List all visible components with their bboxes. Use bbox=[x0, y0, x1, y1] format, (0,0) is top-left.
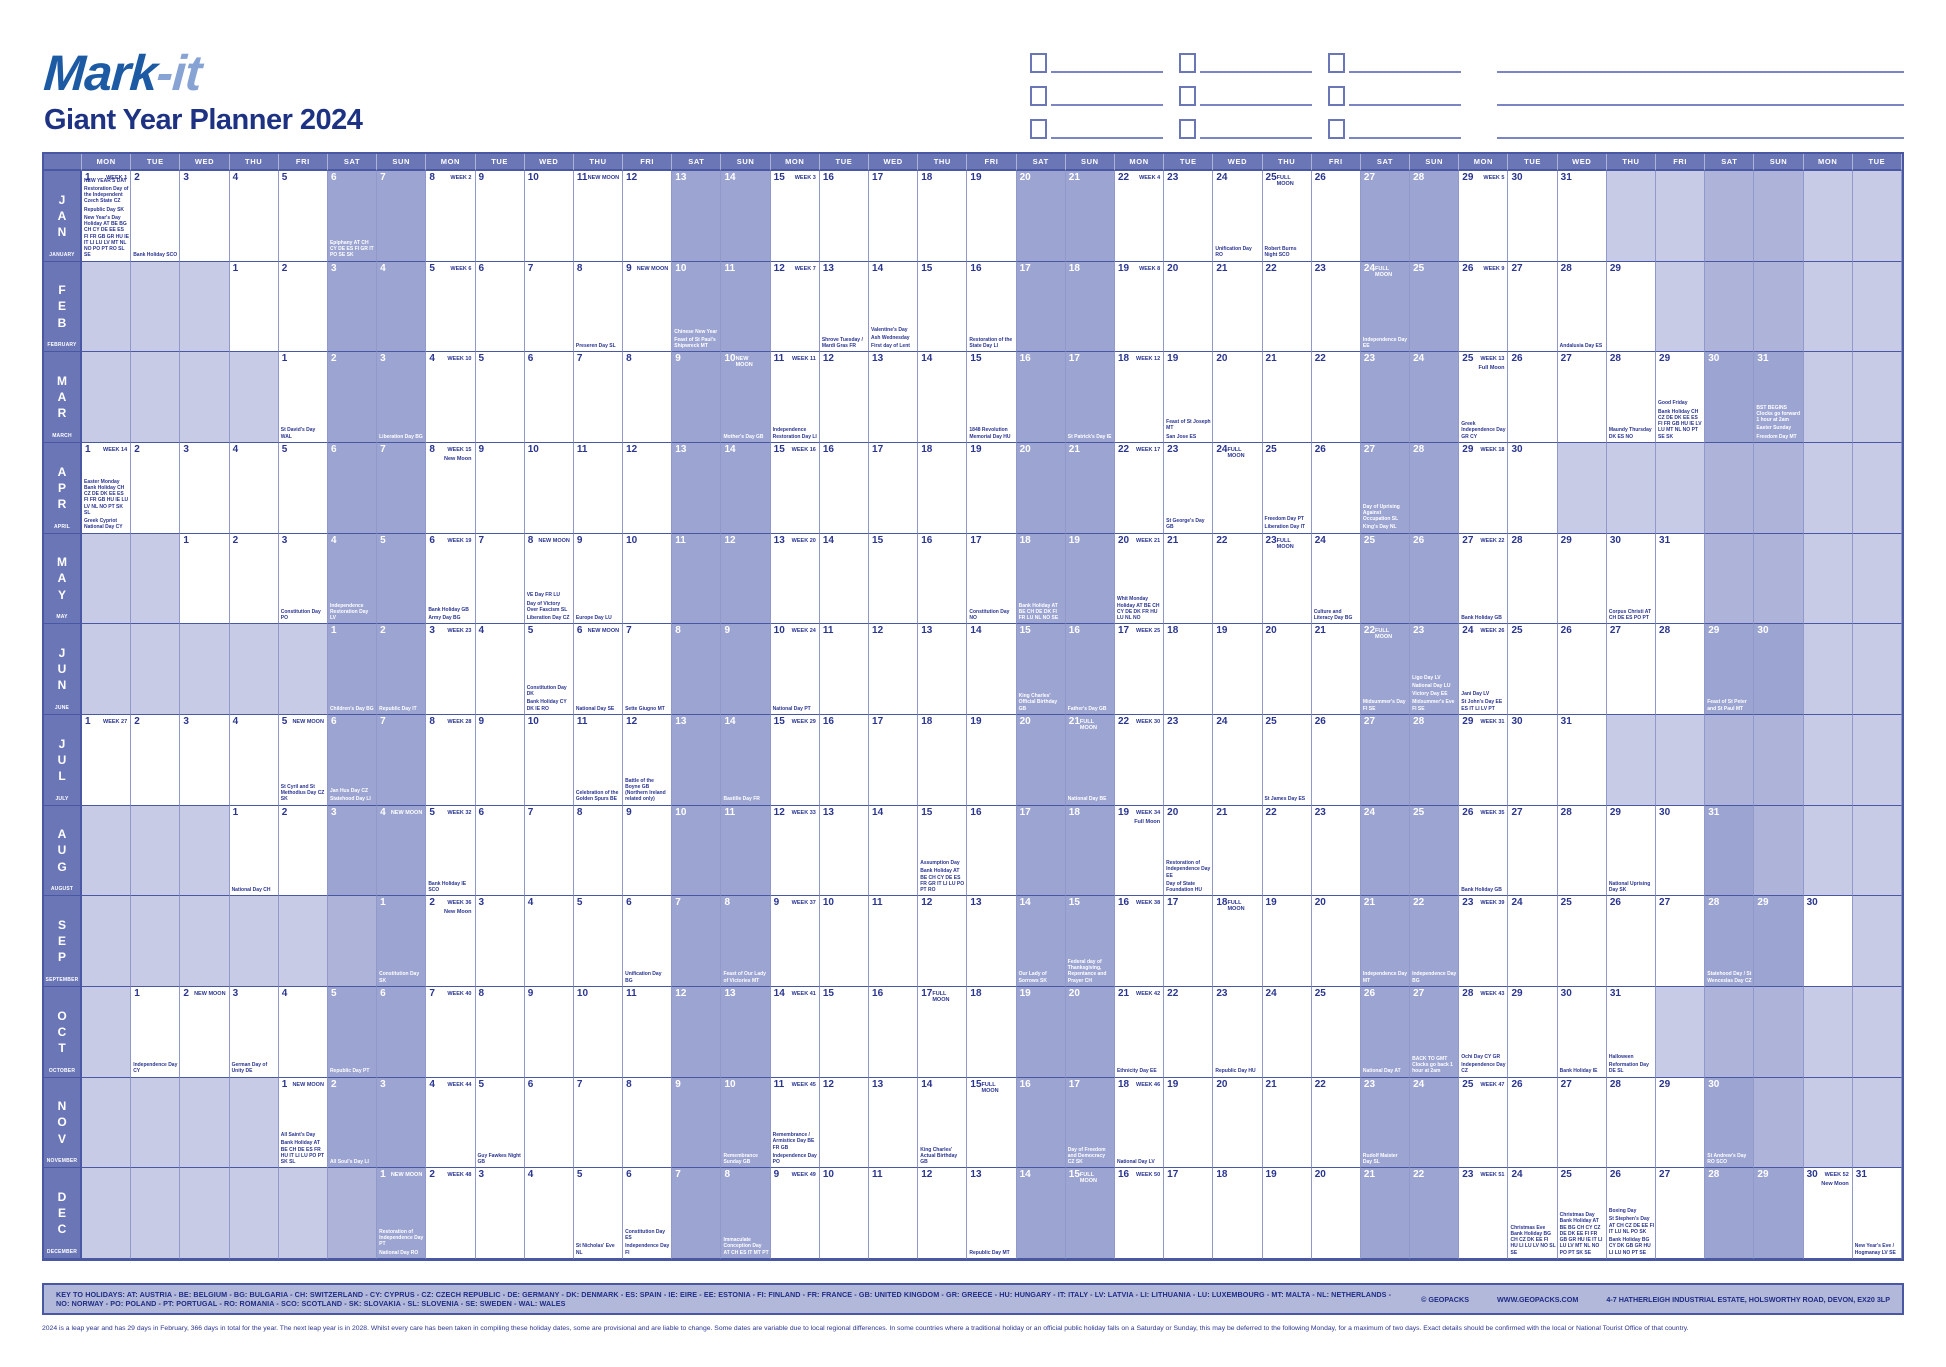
blank-cell bbox=[1853, 352, 1902, 443]
day-number: 15 bbox=[872, 536, 883, 546]
day-number: 7 bbox=[626, 626, 632, 636]
day-cell-top: 28 bbox=[1558, 806, 1606, 818]
holiday-entry: Europe Day LU bbox=[576, 615, 621, 621]
day-cell-mar-16: 16 bbox=[1017, 352, 1066, 443]
day-cell-top: 10 bbox=[574, 987, 622, 999]
blank-cell bbox=[180, 806, 229, 897]
day-number: 9 bbox=[577, 536, 583, 546]
day-cell-top: 20 bbox=[1017, 171, 1065, 183]
holiday-entry: Bank Holiday CH CZ DE DK EE ES FI FR GB … bbox=[1658, 409, 1703, 440]
day-cell-nov-12: 12 bbox=[820, 1078, 869, 1169]
week-label: WEEK 37 bbox=[792, 900, 816, 906]
day-cell-top: 17 bbox=[1017, 806, 1065, 818]
day-number: 20 bbox=[1167, 808, 1178, 818]
day-number: 31 bbox=[1561, 717, 1572, 727]
day-number: 1 bbox=[380, 898, 386, 908]
holiday-entry: Christmas Day Bank Holiday AT BE BG CH C… bbox=[1560, 1212, 1605, 1256]
day-cell-top: 5 bbox=[476, 1078, 524, 1090]
day-cell-feb-6: 6 bbox=[476, 262, 525, 353]
holiday-list: Bank Holiday GB bbox=[1461, 885, 1506, 893]
day-number: 24 bbox=[1511, 1170, 1522, 1180]
note-row bbox=[1030, 106, 1904, 139]
week-label: WEEK 22 bbox=[1480, 538, 1504, 544]
holiday-entry: Unification Day RO bbox=[1215, 246, 1260, 259]
day-number: 9 bbox=[724, 626, 730, 636]
day-cell-mar-13: 13 bbox=[869, 352, 918, 443]
day-cell-nov-11: 11WEEK 45Remembrance / Armistice Day BE … bbox=[771, 1078, 820, 1169]
day-number: 3 bbox=[429, 626, 435, 636]
blank-cell bbox=[180, 896, 229, 987]
day-number: 15 bbox=[970, 1080, 981, 1090]
day-number: 22 bbox=[1118, 173, 1129, 183]
blank-cell bbox=[1558, 443, 1607, 534]
day-cell-top: 4 bbox=[525, 896, 573, 908]
blank-cell bbox=[230, 624, 279, 715]
day-cell-top: 4 bbox=[476, 624, 524, 636]
holiday-entry: Feast of St Paul's Shipwreck MT bbox=[674, 337, 719, 350]
day-cell-top: 6 bbox=[377, 987, 425, 999]
day-cell-top: 4 bbox=[328, 534, 376, 546]
holiday-entry: New Year's Day Holiday AT BE BG CH CY DE… bbox=[84, 215, 129, 259]
blank-cell bbox=[230, 1078, 279, 1169]
day-number: 22 bbox=[1118, 717, 1129, 727]
day-cell-top: 27 bbox=[1361, 171, 1409, 183]
day-number: 16 bbox=[970, 264, 981, 274]
week-label: WEEK 10 bbox=[447, 356, 471, 362]
week-label: WEEK 5 bbox=[1483, 175, 1504, 181]
day-cell-feb-29: 29 bbox=[1607, 262, 1656, 353]
day-cell-top: 1 bbox=[230, 262, 278, 274]
day-number: 20 bbox=[1216, 354, 1227, 364]
day-cell-sep-14: 14Our Lady of Sorrows SK bbox=[1017, 896, 1066, 987]
day-number: 23 bbox=[1167, 717, 1178, 727]
holiday-entry: Freedom Day PT bbox=[1265, 516, 1310, 522]
day-number: 26 bbox=[1561, 626, 1572, 636]
day-number: 27 bbox=[1561, 1080, 1572, 1090]
day-number: 20 bbox=[1266, 626, 1277, 636]
week-label: WEEK 32 bbox=[447, 810, 471, 816]
day-cell-jan-23: 23 bbox=[1164, 171, 1213, 262]
day-number: 27 bbox=[1364, 445, 1375, 455]
day-cell-top: 16WEEK 38 bbox=[1115, 896, 1163, 908]
day-cell-top: 17 bbox=[1066, 352, 1114, 364]
day-cell-oct-21: 21WEEK 42Ethnicity Day EE bbox=[1115, 987, 1164, 1078]
holiday-entry: Mother's Day GB bbox=[723, 434, 768, 440]
week-label: WEEK 7 bbox=[795, 266, 816, 272]
day-number: 21 bbox=[1069, 717, 1080, 727]
day-number: 10 bbox=[724, 1080, 735, 1090]
day-cell-nov-21: 21 bbox=[1263, 1078, 1312, 1169]
write-in-line bbox=[1349, 71, 1461, 73]
holiday-entry: Jan Hus Day CZ bbox=[330, 788, 375, 794]
blank-cell bbox=[131, 1168, 180, 1259]
write-in-line bbox=[1200, 137, 1312, 139]
day-cell-feb-26: 26WEEK 9 bbox=[1459, 262, 1508, 353]
day-cell-top: 8 bbox=[721, 896, 769, 908]
day-cell-nov-19: 19 bbox=[1164, 1078, 1213, 1169]
day-cell-top: 15 bbox=[1017, 624, 1065, 636]
holiday-list: BACK TO GMT Clocks go back 1 hour at 2am bbox=[1412, 1054, 1457, 1075]
day-cell-jul-10: 10 bbox=[525, 715, 574, 806]
day-cell-top: 22 bbox=[1312, 1078, 1360, 1090]
day-cell-top: 13 bbox=[820, 262, 868, 274]
day-cell-top: 21Full Moon bbox=[1066, 715, 1114, 731]
day-number: 23 bbox=[1315, 808, 1326, 818]
day-cell-top: 22 bbox=[1263, 262, 1311, 274]
day-cell-sep-8: 8Feast of Our Lady of Victories MT bbox=[721, 896, 770, 987]
holiday-list: Preseren Day SL bbox=[576, 341, 621, 349]
holiday-list: St Andrew's Day RO SCO bbox=[1707, 1151, 1752, 1166]
holiday-entry: German Day of Unity DE bbox=[232, 1062, 277, 1075]
checkbox[interactable] bbox=[1179, 86, 1196, 106]
holiday-list: Greek Independence Day GR CY bbox=[1461, 419, 1506, 440]
week-label: WEEK 21 bbox=[1136, 538, 1160, 544]
day-number: 18 bbox=[1069, 264, 1080, 274]
day-number: 23 bbox=[1413, 626, 1424, 636]
day-number: 30 bbox=[1807, 1170, 1818, 1180]
moon-phase-label: Full Moon bbox=[1227, 900, 1258, 912]
day-cell-oct-27: 27BACK TO GMT Clocks go back 1 hour at 2… bbox=[1410, 987, 1459, 1078]
day-cell-top: 12WEEK 33 bbox=[771, 806, 819, 818]
day-number: 2 bbox=[134, 445, 140, 455]
holiday-entry: St James Day ES bbox=[1265, 796, 1310, 802]
day-cell-mar-26: 26 bbox=[1508, 352, 1557, 443]
holiday-list: Constitution Day ESIndependence Day FI bbox=[625, 1227, 670, 1256]
day-cell-jan-31: 31 bbox=[1558, 171, 1607, 262]
day-cell-jul-7: 7 bbox=[377, 715, 426, 806]
day-number: 12 bbox=[626, 445, 637, 455]
month-label-dec: D E CDECEMBER bbox=[44, 1168, 82, 1259]
day-cell-oct-20: 20 bbox=[1066, 987, 1115, 1078]
day-cell-top: 29WEEK 31 bbox=[1459, 715, 1507, 727]
day-cell-top: 23 bbox=[1312, 806, 1360, 818]
holiday-list: Valentine's DayAsh WednesdayFirst day of… bbox=[871, 325, 916, 350]
month-name: JUNE bbox=[44, 705, 80, 711]
day-cell-may-25: 25 bbox=[1361, 534, 1410, 625]
checkbox[interactable] bbox=[1328, 119, 1345, 139]
day-number: 17 bbox=[1069, 1080, 1080, 1090]
holiday-list: Celebration of the Golden Spurs BE bbox=[576, 788, 621, 803]
day-number: 23 bbox=[1462, 898, 1473, 908]
day-cell-jan-29: 29WEEK 5 bbox=[1459, 171, 1508, 262]
day-number: 3 bbox=[183, 717, 189, 727]
day-number: 20 bbox=[1069, 989, 1080, 999]
holiday-entry: Greek Independence Day GR CY bbox=[1461, 421, 1506, 440]
day-number: 15 bbox=[1020, 626, 1031, 636]
checkbox[interactable] bbox=[1030, 53, 1047, 73]
moon-phase-label: New Moon bbox=[538, 538, 569, 544]
checkbox[interactable] bbox=[1179, 119, 1196, 139]
weekday-header: SAT bbox=[672, 154, 721, 171]
day-cell-top: 2WEEK 48 bbox=[426, 1168, 474, 1180]
day-cell-jan-18: 18 bbox=[918, 171, 967, 262]
day-number: 13 bbox=[970, 1170, 981, 1180]
blank-cell bbox=[82, 534, 131, 625]
brand-logo-part2: -it bbox=[155, 45, 203, 101]
day-number: 25 bbox=[1462, 1080, 1473, 1090]
blank-cell bbox=[82, 806, 131, 897]
weekday-header: THU bbox=[230, 154, 279, 171]
day-cell-top: 8 bbox=[672, 624, 720, 636]
month-name: JULY bbox=[44, 796, 80, 802]
day-number: 11 bbox=[577, 445, 588, 455]
day-number: 2 bbox=[429, 898, 435, 908]
day-number: 24 bbox=[1364, 808, 1375, 818]
day-cell-nov-24: 24 bbox=[1410, 1078, 1459, 1169]
day-cell-top: 2 bbox=[131, 443, 179, 455]
week-label: WEEK 12 bbox=[1136, 356, 1160, 362]
day-number: 29 bbox=[1757, 898, 1768, 908]
day-cell-top: 3 bbox=[328, 262, 376, 274]
day-cell-top: 28 bbox=[1558, 262, 1606, 274]
day-cell-top: 28 bbox=[1607, 352, 1655, 364]
day-number: 4 bbox=[479, 626, 485, 636]
day-number: 11 bbox=[823, 626, 834, 636]
checkbox[interactable] bbox=[1328, 53, 1345, 73]
holiday-list: Boxing DaySt Stephen's Day AT CH CZ DE E… bbox=[1609, 1206, 1654, 1256]
note-group bbox=[1030, 53, 1163, 73]
holiday-entry: Sette Giugno MT bbox=[625, 706, 670, 712]
day-cell-jan-19: 19 bbox=[967, 171, 1016, 262]
day-number: 4 bbox=[233, 717, 239, 727]
day-cell-top: 24 bbox=[1213, 171, 1261, 183]
day-cell-aug-30: 30 bbox=[1656, 806, 1705, 897]
holiday-list: Bank Holiday IE bbox=[1560, 1066, 1605, 1074]
weekday-header: WED bbox=[525, 154, 574, 171]
day-cell-top: 6 bbox=[525, 352, 573, 364]
checkbox[interactable] bbox=[1030, 119, 1047, 139]
holiday-entry: Independence Day BG bbox=[1412, 971, 1457, 984]
day-number: 16 bbox=[1118, 898, 1129, 908]
day-number: 29 bbox=[1462, 717, 1473, 727]
day-cell-top: 8 bbox=[574, 806, 622, 818]
moon-phase-label: New Moon bbox=[736, 356, 767, 368]
holiday-entry: Republic Day PT bbox=[330, 1068, 375, 1074]
day-number: 29 bbox=[1708, 626, 1719, 636]
day-number: 18 bbox=[1069, 808, 1080, 818]
day-cell-top: 7 bbox=[476, 534, 524, 546]
day-cell-top: 17 bbox=[1164, 1168, 1212, 1180]
day-cell-sep-22: 22Independence Day BG bbox=[1410, 896, 1459, 987]
day-cell-top: 27 bbox=[1656, 896, 1704, 908]
weekday-header: SUN bbox=[1754, 154, 1803, 171]
holiday-list: German Day of Unity DE bbox=[232, 1060, 277, 1075]
day-cell-top: 2 bbox=[131, 171, 179, 183]
day-cell-top: 19WEEK 34 bbox=[1115, 806, 1163, 818]
week-label: WEEK 4 bbox=[1139, 175, 1160, 181]
day-cell-oct-23: 23Republic Day HU bbox=[1213, 987, 1262, 1078]
day-cell-top: 25 bbox=[1558, 896, 1606, 908]
day-number: 9 bbox=[479, 717, 485, 727]
day-cell-jun-4: 4 bbox=[476, 624, 525, 715]
day-cell-top: 23 bbox=[1361, 352, 1409, 364]
holiday-list: Mother's Day GB bbox=[723, 432, 768, 440]
day-cell-mar-24: 24 bbox=[1410, 352, 1459, 443]
day-cell-sep-26: 26 bbox=[1607, 896, 1656, 987]
day-number: 21 bbox=[1216, 808, 1227, 818]
day-cell-feb-5: 5WEEK 6 bbox=[426, 262, 475, 353]
day-cell-top: 29 bbox=[1705, 624, 1753, 636]
day-cell-jun-27: 27 bbox=[1607, 624, 1656, 715]
day-cell-aug-17: 17 bbox=[1017, 806, 1066, 897]
day-cell-nov-2: 2All Soul's Day LI bbox=[328, 1078, 377, 1169]
day-cell-top: 11 bbox=[574, 443, 622, 455]
day-cell-top: 14 bbox=[869, 262, 917, 274]
day-number: 5 bbox=[282, 445, 288, 455]
day-cell-top: 31 bbox=[1853, 1168, 1901, 1180]
holiday-entry: Christmas Eve Bank Holiday BG CH CZ DK E… bbox=[1510, 1225, 1555, 1256]
day-cell-jan-5: 5 bbox=[279, 171, 328, 262]
weekday-header: TUE bbox=[820, 154, 869, 171]
day-cell-apr-18: 18 bbox=[918, 443, 967, 534]
day-cell-top: 19WEEK 8 bbox=[1115, 262, 1163, 274]
day-number: 6 bbox=[479, 808, 485, 818]
day-number: 7 bbox=[675, 1170, 681, 1180]
holiday-list: Father's Day GB bbox=[1068, 704, 1113, 712]
month-name: MAY bbox=[44, 614, 80, 620]
day-cell-top: 2 bbox=[131, 715, 179, 727]
holiday-list: Independence Restoration Day LV bbox=[330, 601, 375, 622]
day-number: 15 bbox=[921, 808, 932, 818]
day-cell-mar-22: 22 bbox=[1312, 352, 1361, 443]
day-cell-may-28: 28 bbox=[1508, 534, 1557, 625]
day-cell-dec-17: 17 bbox=[1164, 1168, 1213, 1259]
week-label: WEEK 13 bbox=[1480, 356, 1504, 362]
day-number: 19 bbox=[1069, 536, 1080, 546]
holiday-list: Independence Restoration Day LI bbox=[773, 425, 818, 440]
day-cell-top: 13WEEK 20 bbox=[771, 534, 819, 546]
day-number: 16 bbox=[823, 445, 834, 455]
day-cell-feb-9: 9New Moon bbox=[623, 262, 672, 353]
blank-cell bbox=[1656, 171, 1705, 262]
day-cell-jun-13: 13 bbox=[918, 624, 967, 715]
holiday-list: 1848 Revolution Memorial Day HU bbox=[969, 425, 1014, 440]
day-cell-top: 8 bbox=[721, 1168, 769, 1180]
day-number: 5 bbox=[577, 1170, 583, 1180]
day-cell-top: 17Full Moon bbox=[918, 987, 966, 1003]
checkbox[interactable] bbox=[1030, 86, 1047, 106]
day-cell-top: 7 bbox=[377, 443, 425, 455]
checkbox[interactable] bbox=[1179, 53, 1196, 73]
day-number: 11 bbox=[626, 989, 637, 999]
weekday-header: FRI bbox=[1656, 154, 1705, 171]
day-cell-top: 10 bbox=[623, 534, 671, 546]
day-cell-top: 12 bbox=[721, 534, 769, 546]
day-number: 2 bbox=[429, 1170, 435, 1180]
moon-phase-label: New Moon bbox=[391, 810, 422, 816]
day-cell-may-23: 23Full Moon bbox=[1263, 534, 1312, 625]
website-text: WWW.GEOPACKS.COM bbox=[1497, 1295, 1578, 1304]
day-cell-top: 4 bbox=[525, 1168, 573, 1180]
blank-cell bbox=[180, 624, 229, 715]
day-cell-jun-1: 1Children's Day BG bbox=[328, 624, 377, 715]
holiday-entry: Republic Day MT bbox=[969, 1250, 1014, 1256]
holiday-entry: Easter Monday Bank Holiday CH CZ DE DK E… bbox=[84, 479, 129, 517]
day-cell-top: 20 bbox=[1164, 806, 1212, 818]
day-cell-mar-17: 17St Patrick's Day IE bbox=[1066, 352, 1115, 443]
day-cell-sep-2: 2WEEK 36New Moon bbox=[426, 896, 475, 987]
day-cell-top: 25 bbox=[1558, 1168, 1606, 1180]
day-number: 31 bbox=[1610, 989, 1621, 999]
day-cell-dec-1: 1New MoonRestoration of Independence Day… bbox=[377, 1168, 426, 1259]
holiday-entry: Remembrance / Armistice Day BE FR GB bbox=[773, 1132, 818, 1151]
day-number: 19 bbox=[1118, 808, 1129, 818]
weekday-header: TUE bbox=[1853, 154, 1902, 171]
day-number: 29 bbox=[1511, 989, 1522, 999]
day-number: 23 bbox=[1462, 1170, 1473, 1180]
day-number: 23 bbox=[1364, 1080, 1375, 1090]
day-cell-top: 9 bbox=[623, 806, 671, 818]
week-label: WEEK 6 bbox=[450, 266, 471, 272]
day-number: 11 bbox=[577, 717, 588, 727]
day-cell-oct-18: 18 bbox=[967, 987, 1016, 1078]
checkbox[interactable] bbox=[1328, 86, 1345, 106]
page-title: Giant Year Planner 2024 bbox=[44, 104, 362, 137]
weekday-header: WED bbox=[1558, 154, 1607, 171]
day-cell-top: 27 bbox=[1508, 262, 1556, 274]
day-number: 30 bbox=[1511, 173, 1522, 183]
day-number: 31 bbox=[1856, 1170, 1867, 1180]
day-number: 8 bbox=[479, 989, 485, 999]
holiday-entry: St John's Day EE ES IT LI LV PT bbox=[1461, 699, 1506, 712]
day-cell-top: 14 bbox=[967, 624, 1015, 636]
day-number: 30 bbox=[1610, 536, 1621, 546]
day-cell-sep-10: 10 bbox=[820, 896, 869, 987]
day-cell-sep-19: 19 bbox=[1263, 896, 1312, 987]
blank-cell bbox=[1804, 806, 1853, 897]
day-cell-top: 5New Moon bbox=[279, 715, 327, 727]
day-cell-top: 6 bbox=[328, 715, 376, 727]
holiday-list: Assumption DayBank Holiday AT BE CH CY D… bbox=[920, 858, 965, 893]
month-label-apr: A P RAPRIL bbox=[44, 443, 82, 534]
day-cell-top: 25 bbox=[1361, 534, 1409, 546]
day-cell-top: 14WEEK 41 bbox=[771, 987, 819, 999]
day-number: 31 bbox=[1757, 354, 1768, 364]
day-number: 2 bbox=[380, 626, 386, 636]
weekday-header: FRI bbox=[623, 154, 672, 171]
day-number: 6 bbox=[577, 626, 583, 636]
blank-cell bbox=[1853, 262, 1902, 353]
day-cell-top: 31 bbox=[1558, 171, 1606, 183]
holiday-entry: Independence Day MT bbox=[1363, 971, 1408, 984]
holiday-entry: Valentine's Day bbox=[871, 327, 916, 333]
day-number: 19 bbox=[1266, 898, 1277, 908]
day-cell-top: 2 bbox=[377, 624, 425, 636]
day-cell-may-17: 17Constitution Day NO bbox=[967, 534, 1016, 625]
day-cell-jul-3: 3 bbox=[180, 715, 229, 806]
day-cell-oct-7: 7WEEK 40 bbox=[426, 987, 475, 1078]
day-number: 21 bbox=[1069, 173, 1080, 183]
day-cell-top: 10 bbox=[721, 1078, 769, 1090]
month-label-may: M A YMAY bbox=[44, 534, 82, 625]
day-cell-feb-2: 2 bbox=[279, 262, 328, 353]
day-cell-top: 3 bbox=[180, 715, 228, 727]
day-cell-top: 26 bbox=[1312, 171, 1360, 183]
day-number: 10 bbox=[528, 717, 539, 727]
week-label: WEEK 25 bbox=[1136, 628, 1160, 634]
day-cell-oct-31: 31HalloweenReformation Day DE SL bbox=[1607, 987, 1656, 1078]
day-number: 23 bbox=[1167, 445, 1178, 455]
day-cell-top: 9WEEK 37 bbox=[771, 896, 819, 908]
day-cell-jul-1: 1WEEK 27 bbox=[82, 715, 131, 806]
day-cell-top: 31 bbox=[1558, 715, 1606, 727]
month-name: NOVEMBER bbox=[44, 1158, 80, 1164]
write-in-line bbox=[1051, 137, 1163, 139]
day-cell-top: 20 bbox=[1213, 352, 1261, 364]
month-abbr: D E C bbox=[58, 1189, 67, 1238]
day-cell-sep-12: 12 bbox=[918, 896, 967, 987]
day-number: 11 bbox=[872, 898, 883, 908]
